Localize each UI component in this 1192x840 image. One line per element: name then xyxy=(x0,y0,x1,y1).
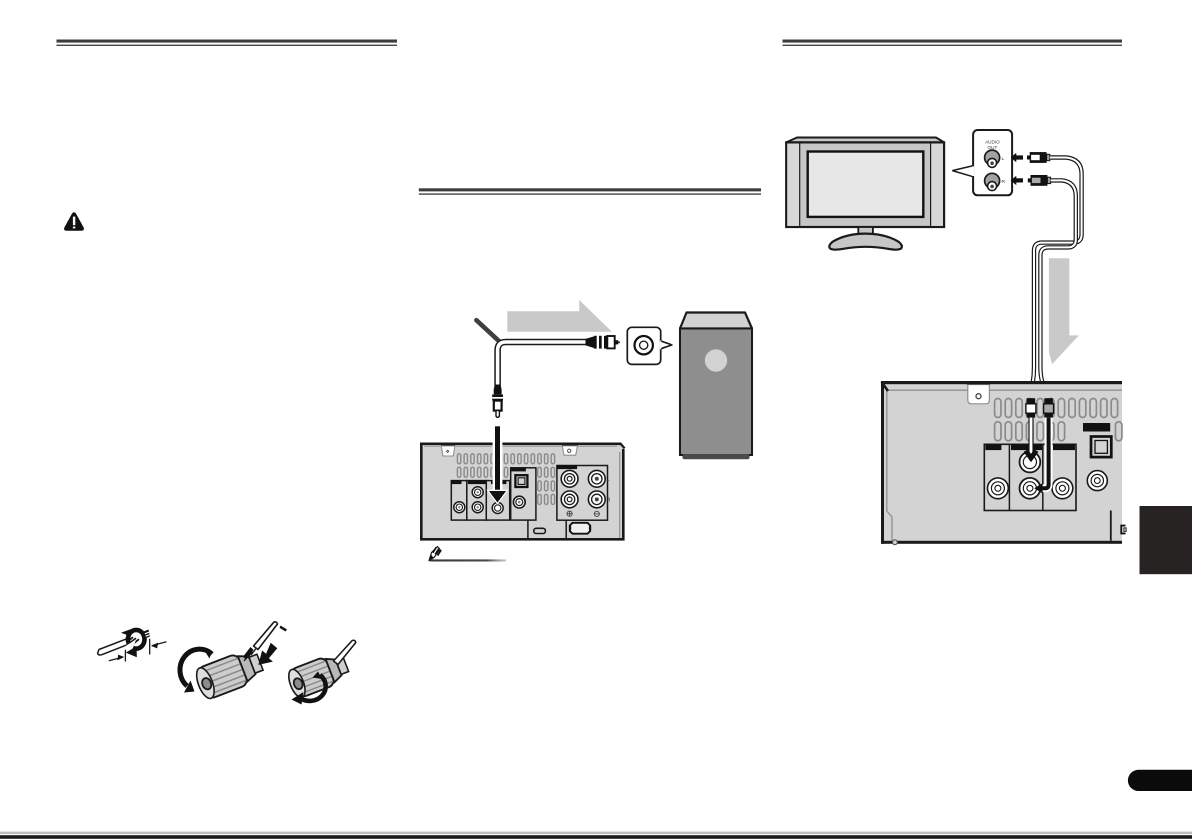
svg-text:AUDIO: AUDIO xyxy=(985,140,1000,145)
svg-text:R: R xyxy=(1002,179,1006,185)
svg-text:L: L xyxy=(1002,156,1005,162)
svg-text:R: R xyxy=(607,498,611,504)
svg-text:L: L xyxy=(607,477,610,483)
